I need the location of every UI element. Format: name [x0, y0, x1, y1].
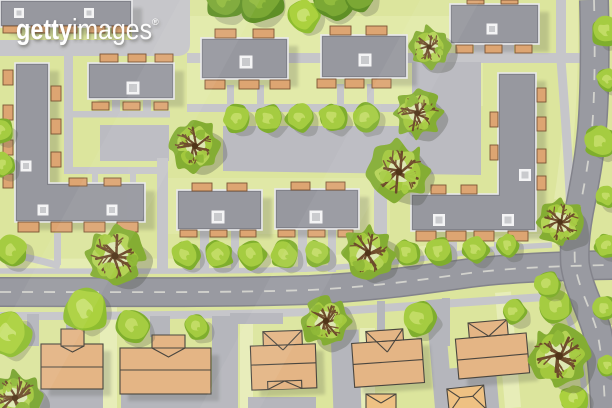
svg-text:getty: getty — [16, 14, 72, 46]
svg-text:images: images — [72, 14, 152, 46]
svg-text:®: ® — [152, 17, 159, 27]
